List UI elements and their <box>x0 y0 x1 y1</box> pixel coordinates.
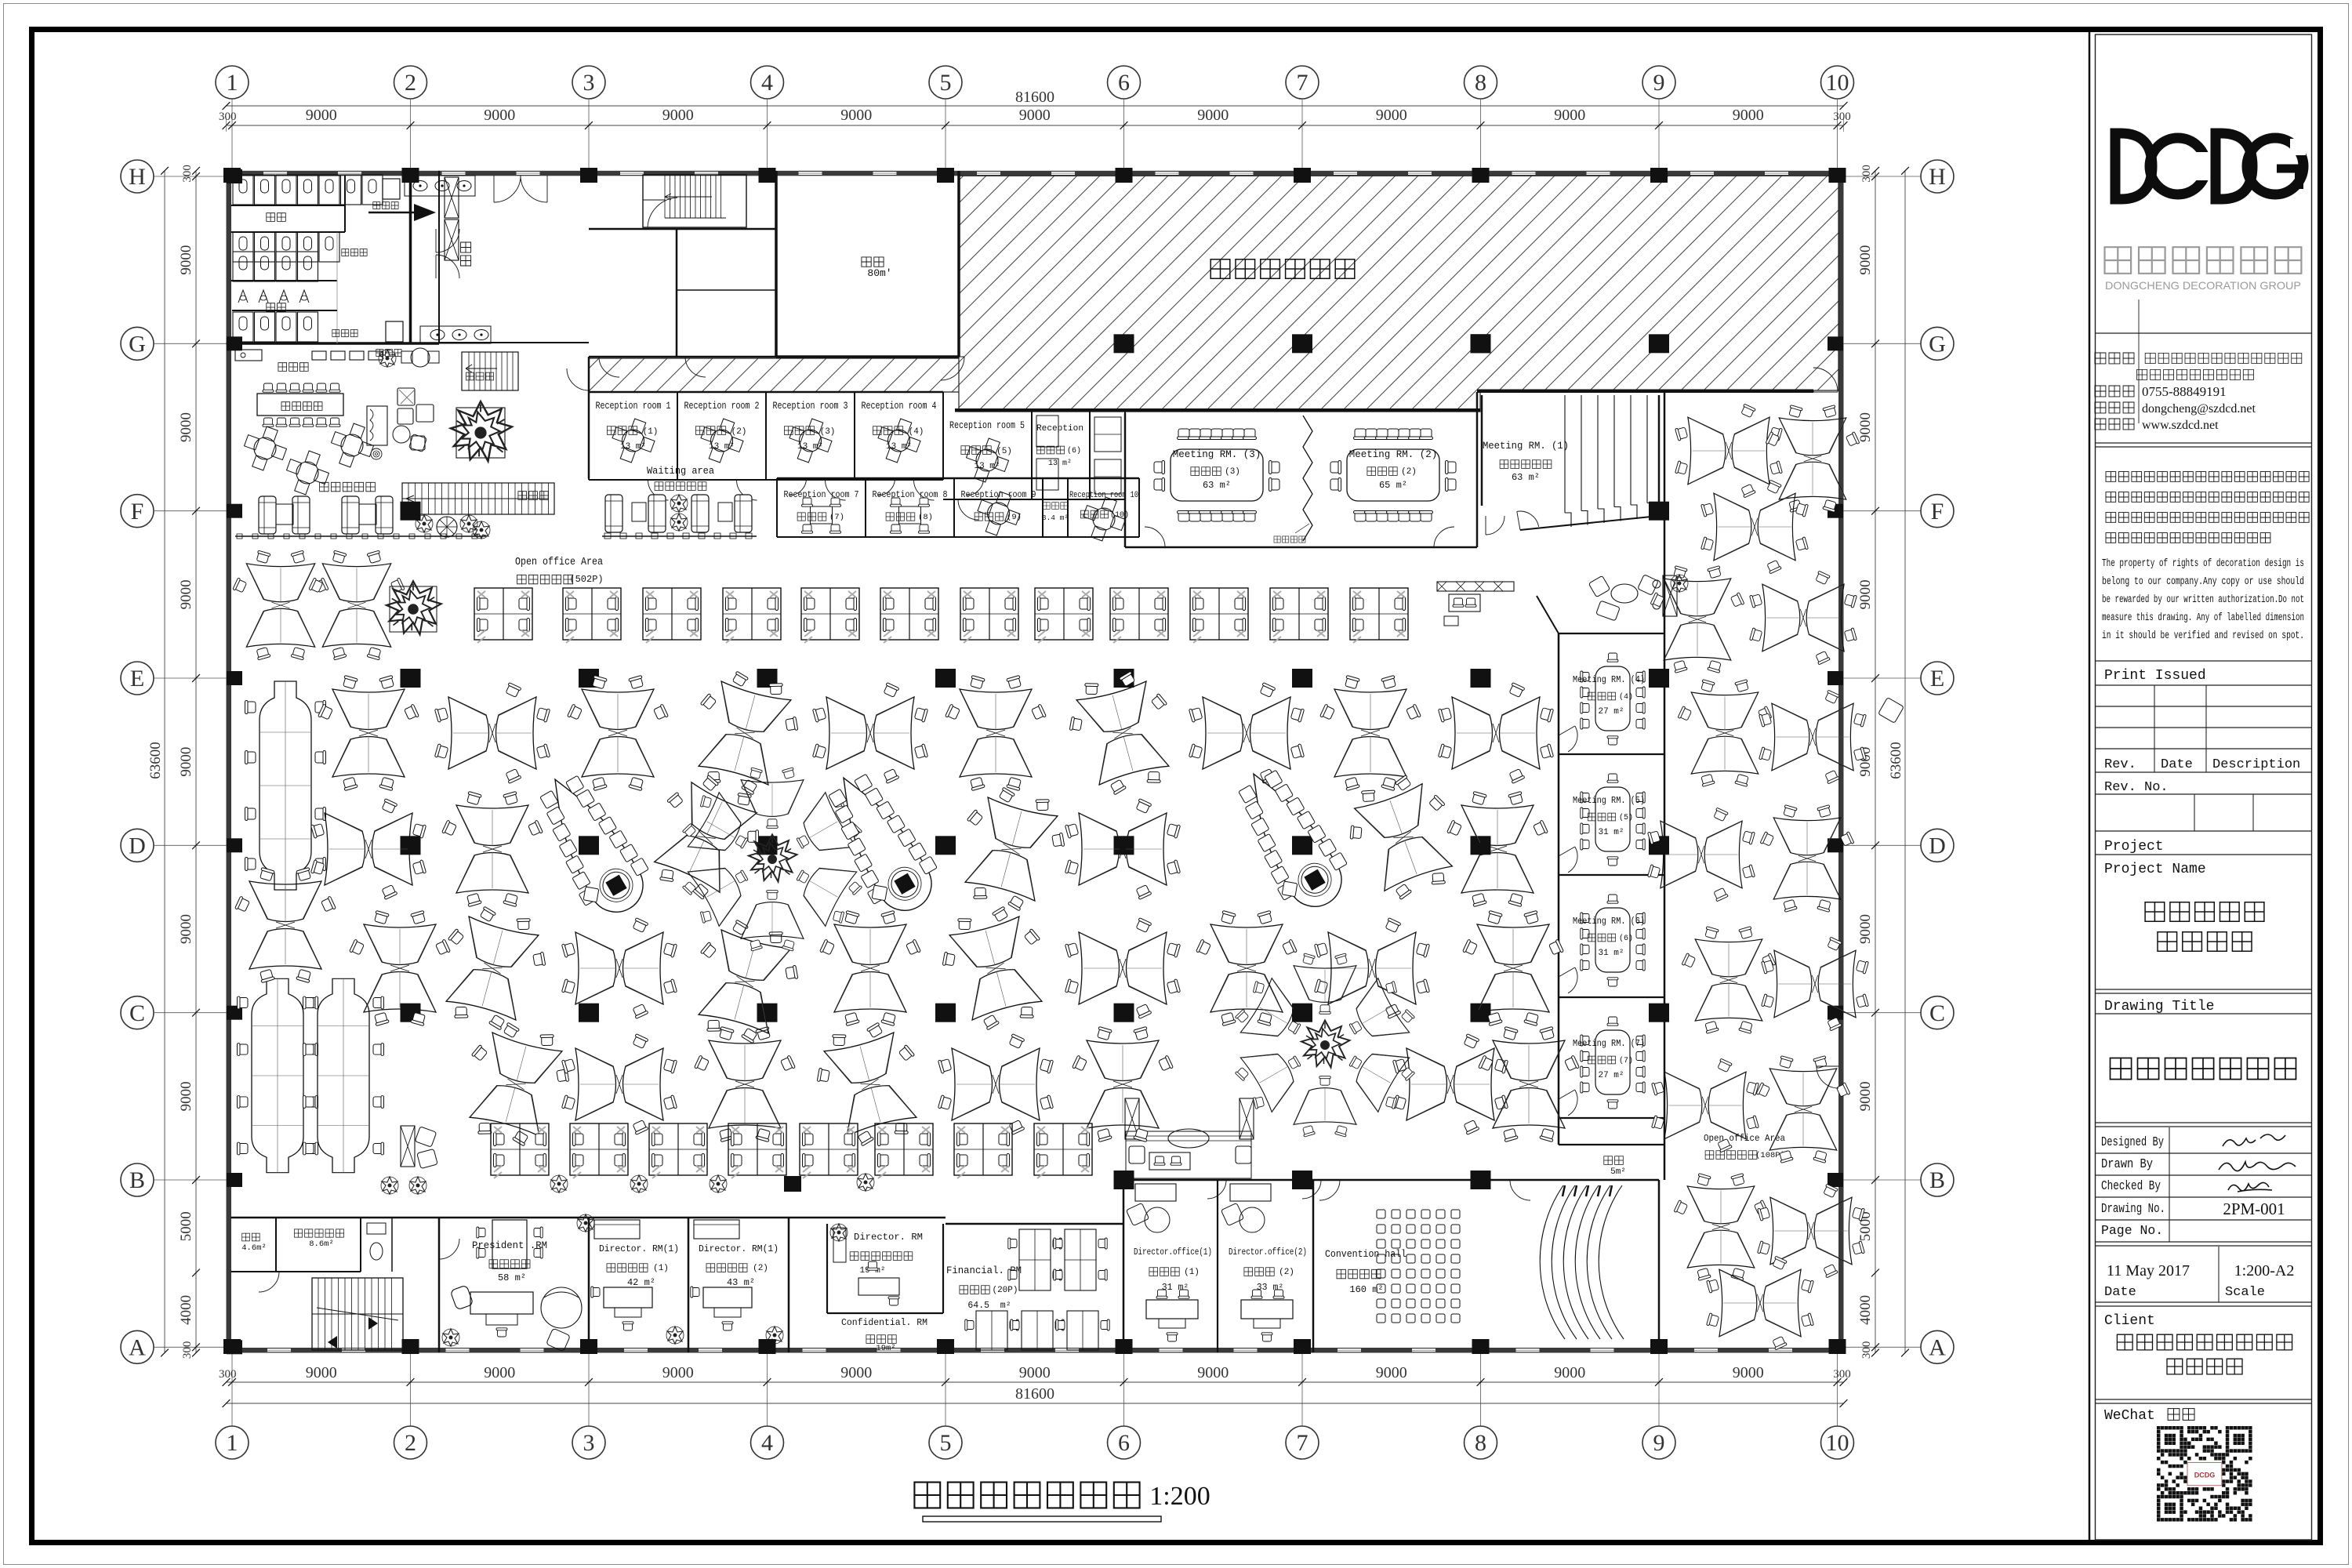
svg-text:81600: 81600 <box>1015 1385 1054 1403</box>
svg-text:Waiting area: Waiting area <box>647 465 714 477</box>
svg-text:9000: 9000 <box>1857 412 1874 442</box>
svg-text:(7): (7) <box>829 513 844 522</box>
svg-text:2: 2 <box>405 70 416 96</box>
svg-text:11 May 2017: 11 May 2017 <box>2107 1262 2190 1279</box>
svg-text:Meeting RM. (6): Meeting RM. (6) <box>1573 916 1645 927</box>
svg-text:The property of rights of deco: The property of rights of decoration des… <box>2102 558 2304 570</box>
svg-text:Meeting RM. (5): Meeting RM. (5) <box>1573 796 1645 806</box>
svg-text:9000: 9000 <box>1554 1364 1585 1381</box>
svg-text:300: 300 <box>1860 165 1873 183</box>
svg-text:Checked By: Checked By <box>2101 1178 2161 1193</box>
svg-text:42 m²: 42 m² <box>627 1277 655 1288</box>
svg-text:Meeting RM. (2): Meeting RM. (2) <box>1349 449 1438 460</box>
svg-text:Rev.: Rev. <box>2104 757 2136 772</box>
svg-text:300: 300 <box>181 1341 194 1359</box>
svg-text:in it should be verified and r: in it should be verified and revised on … <box>2102 630 2304 642</box>
svg-text:43 m²: 43 m² <box>727 1277 755 1288</box>
svg-text:4000: 4000 <box>178 1295 194 1325</box>
svg-text:8: 8 <box>1475 70 1486 96</box>
svg-text:9000: 9000 <box>178 747 194 777</box>
svg-text:9000: 9000 <box>484 1364 515 1381</box>
svg-text:Drawing Title: Drawing Title <box>2104 999 2214 1014</box>
svg-text:Date: Date <box>2104 1285 2136 1300</box>
svg-text:(5): (5) <box>1619 813 1633 822</box>
svg-text:Reception room 1: Reception room 1 <box>596 401 671 412</box>
svg-text:65 m²: 65 m² <box>1379 480 1407 491</box>
svg-text:be rewarded by our written aut: be rewarded by our written authorization… <box>2102 594 2304 606</box>
svg-text:Date: Date <box>2161 757 2193 772</box>
svg-text:9: 9 <box>1653 70 1665 96</box>
svg-text:5000: 5000 <box>178 1211 194 1241</box>
svg-text:www.szdcd.net: www.szdcd.net <box>2142 419 2219 432</box>
svg-text:(20P): (20P) <box>992 1286 1018 1295</box>
svg-text:Rev. No.: Rev. No. <box>2104 780 2169 795</box>
svg-text:Reception room 10: Reception room 10 <box>1069 491 1138 500</box>
svg-text:4000: 4000 <box>1857 1295 1874 1325</box>
svg-text:A: A <box>1929 1335 1946 1361</box>
svg-text:9000: 9000 <box>1019 107 1051 124</box>
svg-text:(6): (6) <box>1619 934 1633 943</box>
svg-text:300: 300 <box>1833 111 1851 123</box>
svg-text:19m²: 19m² <box>876 1344 895 1353</box>
svg-text:B: B <box>129 1167 145 1193</box>
svg-text:B: B <box>1929 1167 1945 1193</box>
svg-text:D: D <box>129 833 146 859</box>
svg-text:(1): (1) <box>1184 1268 1200 1277</box>
svg-text:(2): (2) <box>1401 467 1417 477</box>
svg-text:9000: 9000 <box>1197 1364 1229 1381</box>
svg-text:10: 10 <box>1826 1430 1849 1456</box>
svg-text:5: 5 <box>940 70 952 96</box>
svg-text:A: A <box>129 1335 146 1361</box>
svg-text:1:200: 1:200 <box>1149 1482 1210 1511</box>
svg-text:Project Name: Project Name <box>2104 862 2206 877</box>
svg-text:(8): (8) <box>918 513 933 522</box>
svg-text:9000: 9000 <box>1733 107 1764 124</box>
svg-text:(4): (4) <box>1619 692 1633 702</box>
svg-text:9000: 9000 <box>840 107 872 124</box>
svg-text:C: C <box>129 1000 145 1026</box>
svg-text:9000: 9000 <box>1733 1364 1764 1381</box>
svg-text:160 m²: 160 m² <box>1349 1284 1383 1295</box>
svg-text:WeChat: WeChat <box>2104 1408 2155 1424</box>
svg-text:9: 9 <box>1653 1430 1665 1456</box>
svg-text:1: 1 <box>227 1430 238 1456</box>
svg-text:9000: 9000 <box>1554 107 1585 124</box>
svg-text:E: E <box>130 666 144 691</box>
svg-text:3: 3 <box>583 70 595 96</box>
svg-text:Scale: Scale <box>2225 1285 2265 1300</box>
svg-text:Director.office(2): Director.office(2) <box>1229 1247 1307 1258</box>
svg-text:(2): (2) <box>1279 1268 1294 1277</box>
svg-text:5m²: 5m² <box>1610 1167 1626 1177</box>
svg-text:Designed By: Designed By <box>2101 1134 2164 1149</box>
svg-text:H: H <box>129 164 146 190</box>
svg-text:9000: 9000 <box>178 914 194 944</box>
svg-text:300: 300 <box>219 111 237 123</box>
svg-text:2PM-001: 2PM-001 <box>2223 1200 2285 1218</box>
svg-text:9000: 9000 <box>1857 245 1874 275</box>
svg-text:(3): (3) <box>820 427 836 437</box>
svg-text:Drawn By: Drawn By <box>2101 1156 2153 1171</box>
svg-text:4.6m²: 4.6m² <box>241 1243 267 1253</box>
svg-text:9000: 9000 <box>840 1364 872 1381</box>
svg-text:6: 6 <box>1118 70 1130 96</box>
svg-text:Meeting RM. (4): Meeting RM. (4) <box>1573 675 1645 685</box>
svg-text:9000: 9000 <box>1019 1364 1051 1381</box>
svg-text:2: 2 <box>405 1430 416 1456</box>
svg-text:Meeting RM. (7): Meeting RM. (7) <box>1573 1039 1645 1049</box>
svg-text:Confidential. RM: Confidential. RM <box>841 1317 927 1328</box>
svg-text:F: F <box>131 499 144 524</box>
svg-text:8: 8 <box>1475 1430 1486 1456</box>
svg-text:Reception room 2: Reception room 2 <box>684 401 760 412</box>
svg-text:8.6m²: 8.6m² <box>309 1240 334 1249</box>
svg-text:Director.office(1): Director.office(1) <box>1134 1247 1212 1258</box>
svg-text:belong to our company.Any copy: belong to our company.Any copy or use sh… <box>2102 576 2304 588</box>
svg-text:64.5 m²: 64.5 m² <box>967 1301 1011 1311</box>
svg-text:27 m²: 27 m² <box>1598 1071 1624 1080</box>
svg-text:(6): (6) <box>1067 446 1081 456</box>
svg-text:DONGCHENG DECORATION GROUP: DONGCHENG DECORATION GROUP <box>2105 279 2301 292</box>
svg-text:31 m²: 31 m² <box>1598 828 1624 837</box>
svg-text:9000: 9000 <box>178 245 194 275</box>
svg-text:Meeting RM. (1): Meeting RM. (1) <box>1483 441 1569 452</box>
svg-text:(3): (3) <box>1225 467 1240 477</box>
svg-text:(5): (5) <box>996 447 1012 456</box>
svg-text:63 m²: 63 m² <box>1512 472 1540 483</box>
svg-text:9000: 9000 <box>178 579 194 609</box>
svg-text:9000: 9000 <box>662 107 694 124</box>
svg-text:9000: 9000 <box>1197 107 1229 124</box>
svg-text:H: H <box>1929 164 1946 190</box>
svg-text:80m': 80m' <box>867 267 891 279</box>
svg-text:81600: 81600 <box>1015 89 1054 106</box>
svg-text:300: 300 <box>1833 1368 1851 1381</box>
svg-text:3.4 m²: 3.4 m² <box>1042 514 1069 522</box>
svg-text:Description: Description <box>2212 757 2300 772</box>
svg-text:13 m²: 13 m² <box>1048 459 1072 468</box>
svg-text:Reception room 3: Reception room 3 <box>773 401 848 412</box>
svg-text:(2): (2) <box>753 1264 768 1273</box>
svg-text:1:200-A2: 1:200-A2 <box>2234 1262 2295 1279</box>
svg-text:Drawing No.: Drawing No. <box>2101 1201 2165 1216</box>
svg-text:Meeting RM. (3): Meeting RM. (3) <box>1173 449 1261 460</box>
svg-text:3: 3 <box>583 1430 595 1456</box>
svg-text:4: 4 <box>761 1430 773 1456</box>
svg-text:Director. RM: Director. RM <box>854 1232 923 1243</box>
svg-text:Client: Client <box>2104 1313 2155 1329</box>
svg-text:9000: 9000 <box>1857 579 1874 609</box>
svg-text:5: 5 <box>940 1430 952 1456</box>
svg-text:31 m²: 31 m² <box>1598 949 1624 958</box>
svg-text:dongcheng@szdcd.net: dongcheng@szdcd.net <box>2142 402 2256 416</box>
svg-text:1: 1 <box>227 70 238 96</box>
svg-text:9000: 9000 <box>1376 107 1407 124</box>
svg-text:4: 4 <box>761 70 773 96</box>
svg-text:Reception room 5: Reception room 5 <box>949 420 1025 431</box>
svg-text:Project: Project <box>2104 839 2164 855</box>
svg-text:9000: 9000 <box>484 107 515 124</box>
svg-text:(4): (4) <box>909 427 924 437</box>
svg-text:(502P): (502P) <box>569 574 603 585</box>
svg-text:9000: 9000 <box>1376 1364 1407 1381</box>
svg-text:63600: 63600 <box>1888 742 1904 779</box>
svg-text:27 m²: 27 m² <box>1598 707 1624 717</box>
svg-text:300: 300 <box>219 1368 237 1381</box>
svg-text:measure this drawing. Any of l: measure this drawing. Any of labelled di… <box>2102 612 2304 624</box>
svg-text:9000: 9000 <box>1857 1081 1874 1111</box>
svg-text:Reception room 4: Reception room 4 <box>862 401 937 412</box>
svg-text:G: G <box>129 332 146 358</box>
svg-text:Reception: Reception <box>1036 424 1083 434</box>
svg-text:9000: 9000 <box>662 1364 694 1381</box>
svg-text:Print Issued: Print Issued <box>2104 668 2206 684</box>
svg-text:6: 6 <box>1118 1430 1130 1456</box>
svg-text:(1): (1) <box>653 1264 669 1273</box>
svg-text:63 m²: 63 m² <box>1203 480 1231 491</box>
svg-text:9000: 9000 <box>178 1081 194 1111</box>
svg-text:7: 7 <box>1297 70 1308 96</box>
svg-text:(1): (1) <box>643 427 659 437</box>
svg-text:(2): (2) <box>731 427 747 437</box>
svg-text:Open office Area: Open office Area <box>515 557 603 568</box>
svg-text:9000: 9000 <box>178 412 194 442</box>
svg-text:Director. RM(1): Director. RM(1) <box>699 1243 779 1254</box>
svg-text:C: C <box>1929 1000 1945 1026</box>
svg-text:300: 300 <box>181 165 194 183</box>
svg-text:10: 10 <box>1826 70 1849 96</box>
svg-text:G: G <box>1929 332 1946 358</box>
svg-text:9000: 9000 <box>306 107 337 124</box>
svg-text:DCDG: DCDG <box>2194 1471 2216 1479</box>
svg-text:E: E <box>1930 666 1944 691</box>
svg-text:F: F <box>1931 499 1944 524</box>
svg-text:300: 300 <box>1860 1341 1873 1359</box>
svg-text:Page No.: Page No. <box>2101 1223 2163 1238</box>
svg-text:D: D <box>1929 833 1946 859</box>
svg-text:58 m²: 58 m² <box>498 1272 526 1283</box>
svg-text:Director. RM(1): Director. RM(1) <box>599 1243 679 1254</box>
svg-text:0755-88849191: 0755-88849191 <box>2142 384 2227 399</box>
svg-text:(7): (7) <box>1619 1056 1633 1065</box>
svg-text:9000: 9000 <box>1857 914 1874 944</box>
svg-text:9000: 9000 <box>306 1364 337 1381</box>
svg-text:7: 7 <box>1297 1430 1308 1456</box>
svg-text:63600: 63600 <box>147 742 164 779</box>
